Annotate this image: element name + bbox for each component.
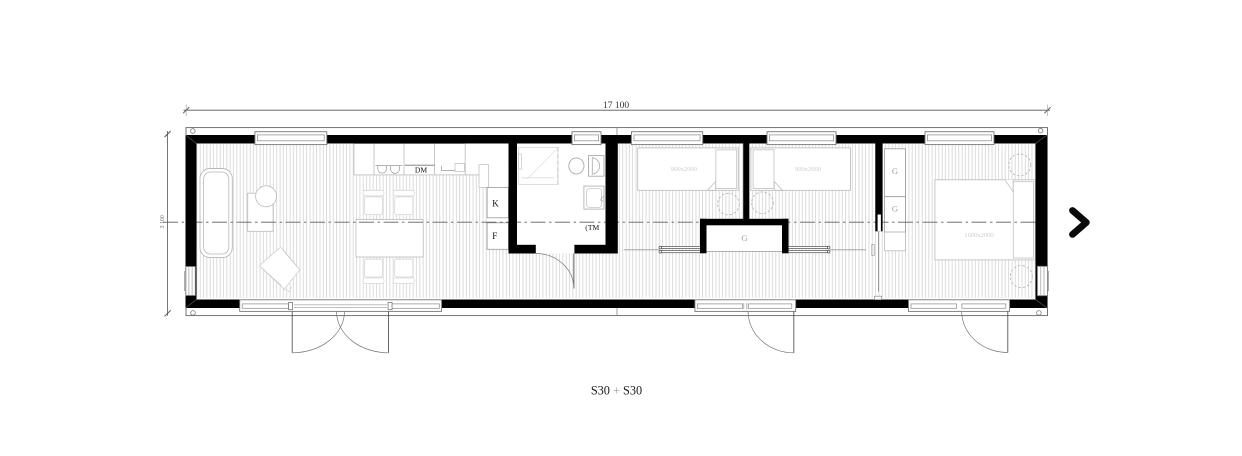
svg-text:DM: DM <box>415 166 427 175</box>
svg-text:K: K <box>492 199 499 209</box>
svg-text:3 100: 3 100 <box>160 215 166 228</box>
svg-text:G: G <box>892 204 898 214</box>
svg-text:(TM: (TM <box>585 223 599 232</box>
svg-text:900x2000: 900x2000 <box>671 166 697 173</box>
svg-text:G: G <box>741 233 747 243</box>
svg-text:17 100: 17 100 <box>603 101 629 111</box>
svg-text:S30 + S30: S30 + S30 <box>591 384 642 398</box>
svg-text:900x2000: 900x2000 <box>795 166 821 173</box>
svg-text:F: F <box>492 231 497 241</box>
svg-text:G: G <box>892 166 898 176</box>
svg-text:1600x2000: 1600x2000 <box>964 232 993 239</box>
